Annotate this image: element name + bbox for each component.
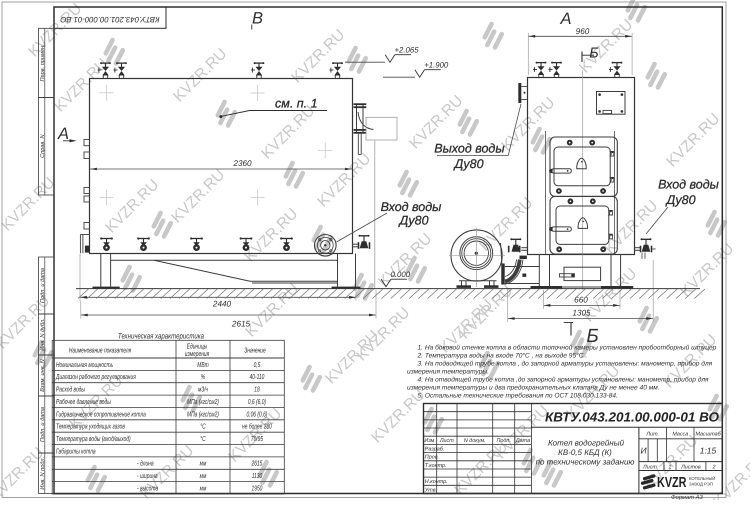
svg-text:А: А [57, 125, 69, 143]
svg-text:по техническому заданию: по техническому заданию [536, 458, 635, 467]
svg-text:КОТЕЛЬНЫЙ: КОТЕЛЬНЫЙ [689, 476, 715, 481]
svg-text:измерения температуры.: измерения температуры. [407, 368, 489, 375]
svg-text:- длина: - длина [137, 459, 154, 468]
svg-text:+1.900: +1.900 [424, 61, 449, 70]
svg-text:МПа (кгс/см2): МПа (кгс/см2) [187, 409, 219, 418]
svg-text:2440: 2440 [212, 300, 232, 309]
svg-text:мм: мм [200, 459, 207, 468]
svg-text:Утв.: Утв. [424, 487, 437, 493]
svg-text:Температура уходящих газов: Температура уходящих газов [56, 422, 125, 431]
svg-text:70/95: 70/95 [251, 434, 264, 443]
svg-text:KVZR: KVZR [657, 475, 687, 491]
svg-text:Т.контр.: Т.контр. [425, 463, 447, 469]
svg-text:2360: 2360 [232, 159, 252, 168]
svg-text:мм: мм [200, 471, 207, 480]
svg-text:1130: 1130 [252, 471, 263, 480]
svg-text:0,6 (6,0): 0,6 (6,0) [248, 397, 266, 406]
svg-text:1. На боковой стенке котла в: 1. На боковой стенке котла в области топ… [418, 344, 717, 351]
svg-text:Диапазон рабочего регулировани: Диапазон рабочего регулирования [55, 372, 136, 381]
svg-text:960: 960 [576, 27, 590, 36]
svg-text:Номинальная мощность: Номинальная мощность [56, 360, 113, 369]
svg-text:Котел водогрейный: Котел водогрейный [548, 439, 625, 448]
svg-text:см. п. 1: см. п. 1 [275, 97, 318, 111]
svg-text:Техническая характеристика: Техническая характеристика [118, 332, 205, 341]
svg-text:м3/ч: м3/ч [198, 385, 208, 394]
svg-text:Пров.: Пров. [425, 455, 439, 461]
svg-text:Гидравлическое сопротивление к: Гидравлическое сопротивление котла [56, 409, 146, 418]
svg-text:Лист: Лист [642, 464, 657, 470]
svg-text:КВТУ.043.201.00.000-01 ВО: КВТУ.043.201.00.000-01 ВО [60, 15, 159, 24]
svg-text:Инв. N дубл.: Инв. N дубл. [39, 318, 46, 350]
svg-text:Наименование показателя: Наименование показателя [69, 346, 131, 355]
svg-text:- высота: - высота [137, 483, 158, 492]
svg-text:4. На отводящей трубе котла ,: 4. На отводящей трубе котла ,до запорной… [418, 376, 710, 383]
svg-text:1:15: 1:15 [700, 446, 717, 456]
svg-text:0.000: 0.000 [391, 270, 411, 279]
svg-text:Масса: Масса [672, 431, 688, 437]
svg-text:И: И [640, 446, 647, 456]
svg-text:мм: мм [200, 483, 207, 492]
svg-text:3. На подводящей трубе котла: 3. На подводящей трубе котла , до запорн… [418, 360, 713, 367]
svg-text:2. Температура воды на входе: 2. Температура воды на входе 70°С , на в… [417, 352, 588, 359]
svg-text:2615: 2615 [231, 320, 251, 329]
svg-text:измерения: измерения [185, 349, 210, 358]
svg-text:°С: °С [200, 422, 206, 431]
svg-text:2: 2 [712, 464, 716, 470]
svg-text:Выход воды: Выход воды [434, 142, 504, 156]
svg-text:Масштаб: Масштаб [696, 431, 722, 437]
svg-text:5. Остальные технические треб: 5. Остальные технические требования по О… [418, 392, 619, 399]
svg-text:Формат А3: Формат А3 [671, 494, 703, 500]
svg-text:Справ. N: Справ. N [40, 134, 46, 158]
svg-text:Дата: Дата [515, 438, 530, 444]
svg-text:Изм.: Изм. [424, 438, 436, 444]
svg-text:ЗАВОД РЭП: ЗАВОД РЭП [689, 482, 713, 487]
svg-text:не более 280: не более 280 [242, 422, 272, 431]
svg-text:%: % [201, 372, 206, 381]
svg-text:Лист: Лист [439, 438, 454, 444]
svg-text:Н.контр.: Н.контр. [425, 479, 448, 485]
svg-text:Перв. примен.: Перв. примен. [40, 44, 46, 81]
svg-text:N докум.: N докум. [464, 438, 486, 444]
svg-text:0,06 (0,6): 0,06 (0,6) [247, 409, 268, 418]
svg-text:2615: 2615 [251, 459, 263, 468]
svg-text:1305: 1305 [572, 308, 591, 317]
svg-text:+2.065: +2.065 [395, 46, 420, 55]
svg-text:Габариты котла: Габариты котла [56, 446, 96, 455]
svg-text:В: В [252, 10, 263, 28]
svg-text:18: 18 [254, 385, 259, 394]
svg-text:КВ-0,5 КБД (К): КВ-0,5 КБД (К) [558, 448, 612, 457]
svg-text:Значение: Значение [244, 346, 265, 355]
svg-text:измерения температуры и два пр: измерения температуры и два предохраните… [407, 384, 660, 391]
svg-text:Ду80: Ду80 [664, 193, 695, 207]
svg-text:°С: °С [200, 434, 206, 443]
svg-text:Подп. и дата: Подп. и дата [39, 268, 46, 303]
svg-text:Ду80: Ду80 [397, 214, 428, 228]
svg-text:1: 1 [668, 464, 671, 470]
svg-text:КВТУ.043.201.00.000-01 ВО: КВТУ.043.201.00.000-01 ВО [545, 410, 720, 425]
svg-text:40-110: 40-110 [250, 372, 265, 381]
svg-text:МПа (кгс/см2): МПа (кгс/см2) [187, 397, 219, 406]
svg-text:Подп. и дата: Подп. и дата [39, 407, 46, 442]
svg-text:Б: Б [589, 46, 598, 62]
svg-text:0,5: 0,5 [254, 360, 261, 369]
svg-text:Температура воды (вход/выход): Температура воды (вход/выход) [56, 434, 131, 443]
svg-text:Инв. N подл.: Инв. N подл. [39, 457, 46, 490]
svg-text:А: А [559, 10, 571, 28]
svg-text:Ду80: Ду80 [452, 157, 483, 171]
svg-text:Лит.: Лит. [645, 431, 659, 437]
svg-text:1950: 1950 [252, 483, 263, 492]
svg-text:- ширина: - ширина [137, 471, 158, 480]
svg-text:Взам. инв. N: Взам. инв. N [40, 358, 46, 392]
svg-text:Вход воды: Вход воды [381, 200, 442, 214]
svg-text:МВт: МВт [197, 360, 208, 369]
svg-text:Листов: Листов [680, 464, 701, 470]
svg-text:Разраб.: Разраб. [425, 447, 445, 453]
svg-text:Рабочее давление воды: Рабочее давление воды [56, 397, 111, 406]
svg-text:Подп.: Подп. [497, 438, 511, 444]
svg-text:Вход воды: Вход воды [658, 178, 719, 192]
svg-text:Расход воды: Расход воды [56, 385, 85, 394]
